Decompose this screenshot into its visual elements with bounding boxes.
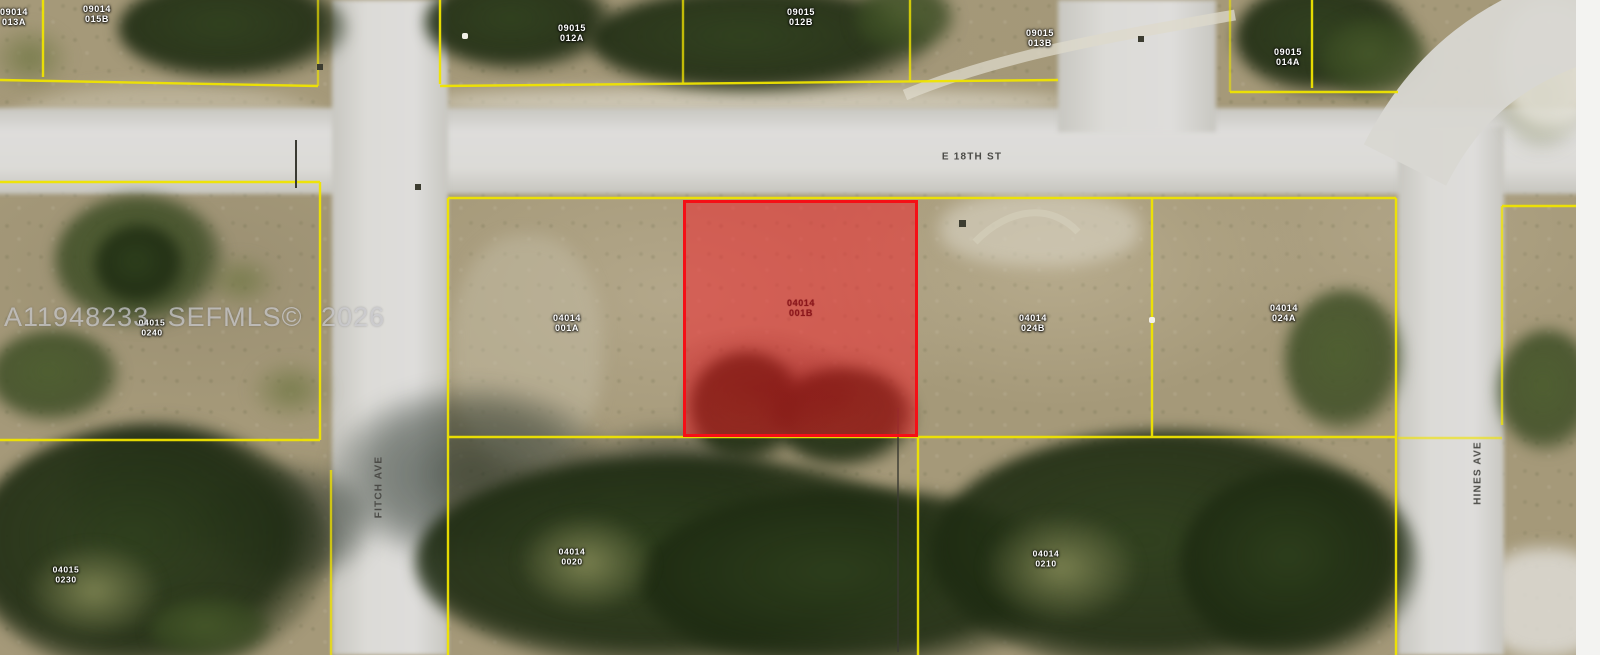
parcel-label: 09015 013B — [1026, 28, 1054, 48]
parcel-label: 09014 015B — [83, 4, 111, 24]
parcel-line — [440, 80, 1058, 86]
parcel-label: 09014 013A — [0, 7, 28, 27]
street-label-e-18th-st: E 18TH ST — [942, 152, 1002, 163]
parcel-label: 04014 0210 — [1033, 549, 1060, 568]
trail-path — [905, 15, 1235, 95]
parcel-id-line2: 024A — [1270, 313, 1298, 323]
parcel-label: 09015 014A — [1274, 47, 1302, 67]
speck — [959, 220, 966, 227]
parcel-id-line2: 001A — [553, 323, 581, 333]
highlighted-parcel-label: 04014 001B — [787, 298, 815, 318]
parcel-label: 04015 0230 — [53, 565, 80, 584]
parcel-label: 04014 024B — [1019, 313, 1047, 333]
parcel-label: 09015 012B — [787, 7, 815, 27]
speck — [462, 33, 468, 39]
parcel-label: 04014 0020 — [559, 547, 586, 566]
parcel-id-line1: 09014 — [0, 7, 28, 17]
parcel-id-line2: 0020 — [559, 557, 586, 567]
speck — [317, 64, 323, 70]
parcel-line — [0, 80, 318, 86]
parcel-id-line2: 001B — [787, 308, 815, 318]
trail-path — [975, 213, 1078, 242]
street-label-hines-ave: HINES AVE — [1473, 441, 1484, 505]
parcel-id-line2: 013A — [0, 17, 28, 27]
speck — [1149, 317, 1155, 323]
parcel-id-line2: 014A — [1274, 57, 1302, 67]
parcel-id-line1: 09014 — [83, 4, 111, 14]
parcel-id-line1: 09015 — [558, 23, 586, 33]
parcel-label: 04014 024A — [1270, 303, 1298, 323]
parcel-id-line2: 012A — [558, 33, 586, 43]
parcel-label: 04014 001A — [553, 313, 581, 333]
aerial-parcel-map-photo: 09014 013A 09014 015B 09015 012A 09015 0… — [0, 0, 1600, 655]
parcel-id-line1: 04014 — [1270, 303, 1298, 313]
highlighted-subject-parcel — [683, 200, 918, 437]
speck — [415, 184, 421, 190]
parcel-id-line1: 04014 — [1019, 313, 1047, 323]
mls-watermark: A11948233 SEFMLS© 2026 — [4, 302, 385, 333]
parcel-id-line1: 09015 — [1274, 47, 1302, 57]
parcel-id-line1: 04014 — [553, 313, 581, 323]
road-curve-topright — [1405, 8, 1600, 165]
parcel-id-line2: 0230 — [53, 575, 80, 585]
parcel-id-line2: 013B — [1026, 38, 1054, 48]
parcel-id-line2: 0210 — [1033, 559, 1060, 569]
parcel-id-line2: 015B — [83, 14, 111, 24]
photo-white-edge — [1576, 0, 1600, 655]
parcel-id-line1: 04014 — [787, 298, 815, 308]
parcel-label: 09015 012A — [558, 23, 586, 43]
parcel-id-line2: 012B — [787, 17, 815, 27]
parcel-id-line1: 09015 — [787, 7, 815, 17]
street-label-fitch-ave: FITCH AVE — [374, 456, 385, 518]
parcel-id-line1: 09015 — [1026, 28, 1054, 38]
speck — [1138, 36, 1144, 42]
parcel-id-line2: 024B — [1019, 323, 1047, 333]
